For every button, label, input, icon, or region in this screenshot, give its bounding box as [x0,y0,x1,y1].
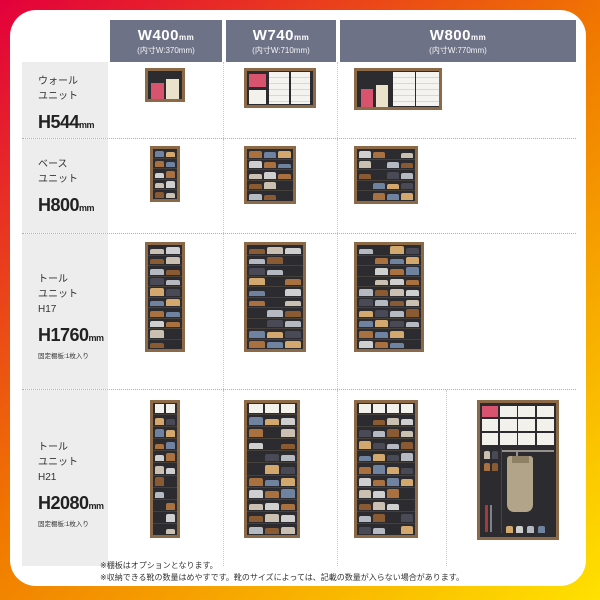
shoe-pair [387,194,399,200]
shoe-pair [359,174,371,179]
shoe-pair [166,171,175,177]
cabinet-shelf [357,160,415,171]
row-label-line: トール [38,272,108,287]
shoe-pair [406,248,420,254]
cabinet-shelf [153,451,177,463]
cabinet-shelf [247,266,303,277]
shoe-pair [406,322,420,327]
size-variation-card: W400mm(内寸W:370mm)W740mm(内寸W:710mm)W800mm… [10,10,586,586]
cabinet-image [150,146,180,202]
shoe-pair [401,514,413,522]
shoe-pair [401,183,413,190]
row-height-unit: mm [89,333,104,343]
shoe-pair [264,172,277,179]
cabinet-image [354,68,442,110]
cabinet-art-part [501,448,502,533]
cabinet-shelf [357,415,415,427]
cabinet-art-part [484,463,490,471]
header-inner-size: (内寸W:710mm) [226,46,336,55]
cabinet-art-part [492,451,498,459]
shoe-pair [387,489,399,498]
cabinet-shelf [247,512,297,524]
shoe-pair [281,429,295,437]
row-height-unit: mm [79,203,94,213]
row-label-note: 固定棚板:1枚入り [38,350,108,360]
cabinet-shelf [247,319,303,330]
cabinet-shelf [357,256,421,267]
shoe-pair [166,280,180,285]
row-height-label: H800mm [38,195,108,218]
cabinet-shelf [247,191,293,201]
shoe-pair [387,162,399,169]
header-size-value: W740 [253,27,294,44]
cabinet-shelf [247,298,303,309]
row-label: トールユニットH17H1760mm固定棚板:1枚入り [22,234,108,389]
shoe-pair [166,442,175,450]
row-height-unit: mm [79,120,94,130]
shoe-pair [373,465,385,473]
shoe-pair [359,467,371,474]
storage-box [155,404,164,413]
cabinet-shelf [357,439,415,451]
cabinet-art-part [484,451,490,459]
shoe-pair [150,301,164,306]
shoe-pair [375,332,389,337]
cabinet-shelf [247,308,303,319]
shoe-pair [373,502,385,509]
cabinet-art-part [518,406,535,418]
shoe-pair [359,504,371,510]
shoe-pair [373,514,385,522]
shoe-pair [387,504,399,510]
header-size-unit: mm [294,33,309,42]
shoe-pair [390,279,404,285]
header-size-label: W740mm [226,28,336,45]
product-cell [108,139,223,233]
shoe-pair [166,453,175,462]
cabinet-shelf [357,524,415,535]
shoe-pair [406,280,420,285]
row-label: ウォールユニットH544mm [22,62,108,138]
product-cell [337,234,576,389]
product-cell [223,234,337,389]
cabinet-image [145,242,185,352]
cabinet-art-part [482,433,499,445]
header-size-column: W740mm(内寸W:710mm) [226,20,336,62]
header-size-unit: mm [179,33,194,42]
shoe-pair [281,504,295,510]
shoe-pair [155,492,164,498]
shoe-pair [373,480,385,486]
row-height-label: H544mm [38,112,108,135]
cabinet-shelf [247,476,297,488]
shoe-pair [249,504,263,509]
cabinet-shelf [148,256,182,267]
cabinet-shelf [357,451,415,463]
product-cell [223,139,337,233]
shoe-pair [285,311,301,316]
cabinet-shelf [247,488,297,500]
cabinet-art-part [482,406,499,418]
shoe-pair [265,528,279,534]
shoe-pair [150,343,164,348]
shoe-pair [150,259,164,264]
shoe-pair [249,174,262,179]
header-inner-size: (内寸W:770mm) [340,46,576,55]
shoe-pair [359,478,371,485]
storage-box [387,404,399,413]
shoe-pair [166,299,180,306]
cabinet-shelf [153,488,177,500]
product-cell [446,390,576,566]
shoe-pair [373,193,385,200]
cabinet-art-part [249,90,266,104]
shoe-pair [166,162,175,168]
header-size-column: W800mm(内寸W:770mm) [340,20,576,62]
cabinet-shelf [357,319,421,330]
cabinet-shelf [153,439,177,451]
cabinet-art-part [537,433,554,445]
footnotes: ※棚板はオプションとなります。 ※収納できる靴の数量はめやすです。靴のサイズによ… [100,560,464,584]
cabinet-shelf [357,512,415,524]
cabinet-shelf [153,190,177,199]
cabinet-shelf [153,403,177,415]
shoe-pair [281,455,295,461]
shoe-pair [278,151,291,158]
row-label-line: ユニット [38,172,108,187]
cabinet-shelf [247,415,297,427]
cabinet-shelf [247,329,303,340]
shoe-pair [373,491,385,498]
shoe-pair [285,248,301,253]
shoe-pair [285,341,301,348]
cabinet-art-part [507,456,533,512]
shoe-pair [373,443,385,450]
shoe-pair [166,289,180,295]
shoe-pair [387,172,399,179]
cabinet-shelf [357,245,421,256]
shoe-pair [375,320,389,327]
cabinet-shelf [357,463,415,475]
shoe-pair [373,183,385,189]
cabinet-shelf [247,524,297,535]
cabinet-shelf [148,298,182,309]
cabinet-shelf [357,170,415,181]
cabinet-art-part [500,433,517,445]
shoe-pair [375,310,389,317]
shoe-pair [281,489,295,497]
header-size-column: W400mm(内寸W:370mm) [110,20,222,62]
shoe-pair [166,152,175,157]
row-label-line: ユニット [38,89,108,104]
cabinet-shelf [247,500,297,512]
cabinet-art-part [166,79,180,99]
shoe-pair [285,331,301,338]
shoe-pair [281,527,295,534]
shoe-pair [166,322,180,327]
shoe-pair [249,278,265,285]
cabinet-image [354,146,418,204]
shoe-pair [249,478,263,485]
cabinet-shelf [153,524,177,535]
cabinet-image [150,400,180,538]
cabinet-shelf [357,277,421,288]
product-cell [337,139,576,233]
table-row: トールユニットH21H2080mm固定棚板:1枚入り [22,389,576,566]
cabinet-shelf [148,340,182,350]
width-header-row: W400mm(内寸W:370mm)W740mm(内寸W:710mm)W800mm… [10,20,586,62]
header-size-unit: mm [471,33,486,42]
shoe-pair [359,516,371,522]
cabinet-shelf [357,329,421,340]
storage-box [281,404,295,413]
shoe-pair [359,430,371,438]
shoe-pair [401,173,413,179]
product-cell [337,390,446,566]
cabinet-shelf [153,180,177,190]
cabinet-shelf [247,439,297,451]
shoe-pair [249,249,265,254]
shoe-pair [166,257,180,264]
shoe-pair [267,320,283,327]
shoe-pair [150,321,164,327]
shoe-pair [387,478,399,486]
shoe-pair [267,257,283,264]
shoe-pair [265,465,279,473]
product-cell [223,62,337,138]
row-height-label: H2080mm [38,493,108,516]
cabinet-shelf [247,277,303,288]
shoe-pair [267,332,283,337]
footnote-line: ※収納できる靴の数量はめやすです。靴のサイズによっては、記載の数量が入らない場合… [100,572,464,584]
cabinet-image [244,146,296,204]
row-label-line: ユニット [38,287,108,302]
shoe-pair [278,174,291,179]
storage-box [249,404,263,413]
shoe-pair [359,341,373,348]
shoe-pair [406,290,420,296]
product-cell [108,62,223,138]
storage-box [166,404,175,413]
cabinet-shelf [247,287,303,298]
shoe-pair [373,528,385,534]
row-label: ベースユニットH800mm [22,139,108,233]
shoe-pair [150,249,164,254]
cabinet-art-part [416,72,438,107]
shoe-pair [249,429,263,438]
shoe-pair [155,477,164,485]
table-row: ウォールユニットH544mm [22,62,576,138]
cabinet-image [244,242,306,352]
shoe-pair [390,321,404,327]
cabinet-art-part [512,456,529,463]
gradient-background: W400mm(内寸W:370mm)W740mm(内寸W:710mm)W800mm… [0,0,600,600]
shoe-pair [166,181,175,188]
cabinet-shelf [247,256,303,267]
cabinet-art-part [502,450,554,452]
footnote-line: ※棚板はオプションとなります。 [100,560,464,572]
cabinet-shelf [247,463,297,475]
row-label-line: トール [38,440,108,455]
shoe-pair [249,301,265,306]
shoe-pair [249,516,263,522]
cabinet-art-part [249,74,266,87]
shoe-pair [249,291,265,296]
shoe-pair [265,503,279,510]
row-height-value: H800 [38,195,79,215]
cabinet-shelf [153,463,177,475]
shoe-pair [375,290,389,295]
shoe-pair [166,270,180,275]
cabinet-art-part [490,505,492,532]
shoe-pair [401,163,413,168]
shoe-pair [267,310,283,317]
row-height-unit: mm [89,501,104,511]
row-label-line: H17 [38,302,108,317]
shoe-pair [387,184,399,189]
row-label-note: 固定棚板:1枚入り [38,518,108,528]
row-label-line: ユニット [38,455,108,470]
cabinet-art-part [516,526,523,533]
shoe-pair [150,311,164,317]
header-size-value: W800 [430,27,471,44]
cabinet-shelf [357,149,415,160]
shoe-pair [285,301,301,306]
shoe-pair [281,515,295,522]
cabinet-shelf [247,245,303,256]
cabinet-shelf [357,191,415,201]
storage-box [401,404,413,413]
cabinet-shelf [357,266,421,277]
row-height-value: H2080 [38,493,89,513]
shoe-pair [150,278,164,285]
shoe-pair [281,478,295,486]
shoe-pair [155,466,164,473]
shoe-pair [267,270,283,275]
cabinet-shelf [357,287,421,298]
shoe-pair [373,420,385,425]
cabinet-shelf [247,403,297,415]
shoe-pair [359,249,373,254]
shoe-pair [375,268,389,275]
product-cell [223,390,337,566]
shoe-pair [401,431,413,438]
shoe-pair [166,193,175,198]
row-label-line: H21 [38,470,108,485]
product-cell [108,234,223,389]
shoe-pair [373,431,385,437]
shoe-pair [373,152,385,157]
shoe-pair [166,312,180,317]
cabinet-shelf [153,415,177,427]
shoe-pair [249,151,262,157]
shoe-pair [155,418,164,426]
shoe-pair [265,454,279,462]
shoe-pair [265,480,279,486]
cabinet-art-part [500,406,517,418]
shoe-pair [155,444,164,450]
cabinet-shelf [148,319,182,330]
shoe-pair [155,192,164,198]
row-label-line: ウォール [38,74,108,89]
shoe-pair [285,289,301,296]
cabinet-art-part [518,433,535,445]
cabinet-shelf [357,476,415,488]
shoe-pair [155,455,164,462]
cabinet-art-part [538,526,545,533]
shoe-pair [278,164,291,169]
shoe-pair [155,183,164,188]
shoe-pair [401,453,413,461]
shoe-pair [249,268,265,274]
cabinet-art-part [492,463,498,471]
shoe-pair [249,341,265,348]
cabinet-shelf [148,266,182,277]
cabinet-shelf [153,169,177,179]
shoe-pair [390,259,404,264]
header-size-label: W400mm [110,28,222,45]
cabinet-shelf [357,181,415,192]
shoe-pair [249,194,262,200]
row-height-value: H1760 [38,325,89,345]
shoe-pair [390,331,404,338]
cabinet-image [145,68,185,102]
shoe-pair [401,193,413,200]
shoe-pair [166,468,175,474]
cabinet-art-part [269,72,289,105]
product-cell [108,390,223,566]
shoe-pair [155,151,164,157]
cabinet-art-part [291,72,311,105]
shoe-pair [264,182,277,189]
shoe-pair [359,289,373,296]
shoe-pair [166,247,180,253]
shoe-pair [166,430,175,437]
cabinet-shelf [148,329,182,340]
shoe-pair [249,527,263,534]
cabinet-shelf [148,308,182,319]
cabinet-shelf [247,170,293,181]
cabinet-shelf [357,298,421,309]
shoe-pair [265,419,279,425]
shoe-pair [387,429,399,437]
cabinet-shelf [247,149,293,160]
shoe-pair [401,468,413,474]
row-height-label: H1760mm [38,325,108,348]
cabinet-art-part [151,83,164,99]
shoe-pair [359,311,373,316]
cabinet-image [354,242,424,352]
cabinet-shelf [357,500,415,512]
shoe-pair [150,330,164,337]
cabinet-shelf [153,149,177,159]
cabinet-shelf [153,427,177,439]
cabinet-art-part [537,406,554,418]
shoe-pair [155,429,164,437]
shoe-pair [390,301,404,306]
shoe-pair [264,195,277,200]
shoe-pair [285,279,301,285]
shoe-pair [359,299,373,306]
shoe-pair [359,527,371,534]
storage-box [373,404,385,413]
cabinet-shelf [357,403,415,415]
shoe-pair [267,247,283,253]
shoe-pair [390,289,404,296]
cabinet-art-part [376,85,388,107]
size-matrix-table: ウォールユニットH544mmベースユニットH800mmトールユニットH17H17… [22,62,576,566]
shoe-pair [406,300,420,306]
